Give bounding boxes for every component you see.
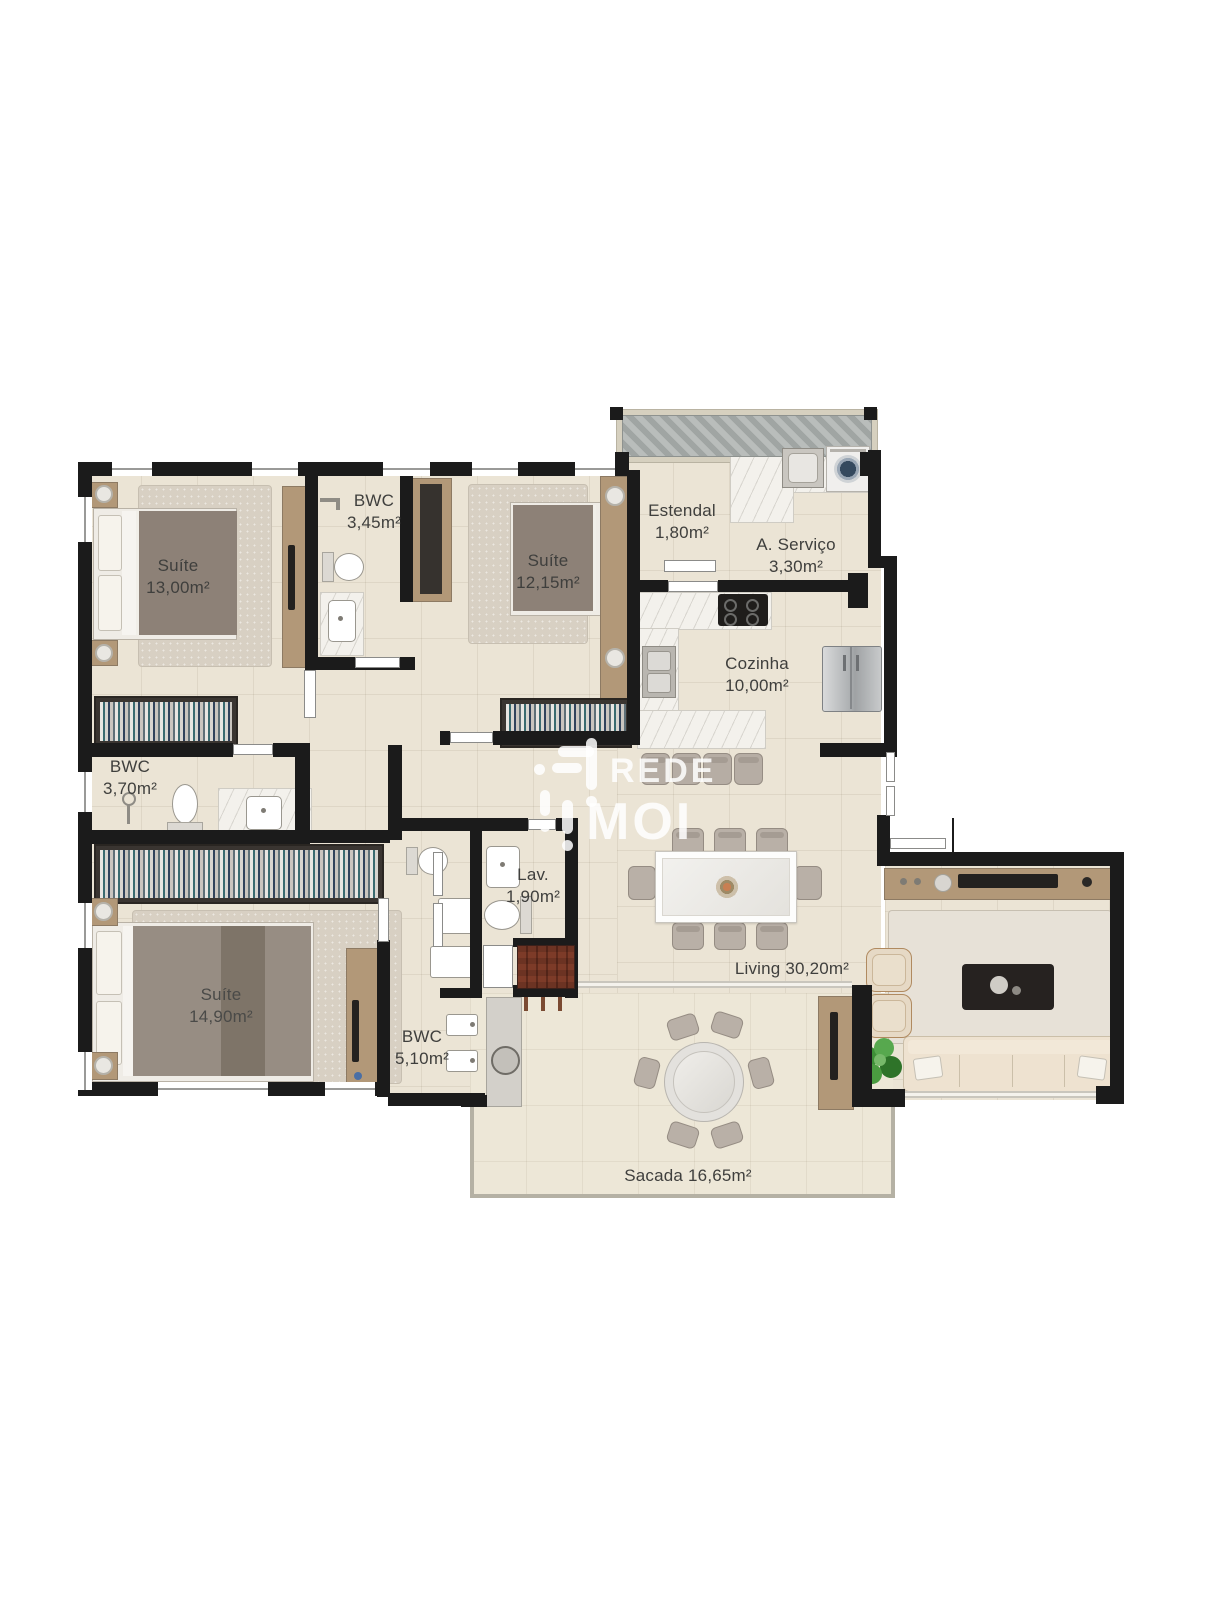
lamp-icon (95, 644, 113, 662)
wall-segment (310, 830, 390, 843)
wall-segment (610, 407, 623, 420)
logo-mark-icon (540, 790, 550, 816)
door-leaf (668, 581, 718, 592)
wall-segment (470, 820, 482, 998)
wall-segment (295, 743, 310, 843)
bbq-skewer (541, 997, 545, 1011)
sink (328, 600, 356, 642)
room-area: 10,00m² (725, 675, 789, 697)
dining-chair (714, 922, 746, 950)
room-area: 3,70m² (103, 778, 157, 800)
room-name: Living 30,20m² (735, 958, 849, 980)
wall-segment (395, 818, 528, 831)
room-area: 3,30m² (756, 556, 835, 578)
window (112, 462, 152, 476)
closet-strip-inner (420, 484, 442, 594)
wall-segment (864, 407, 877, 420)
logo-mark-icon (540, 822, 550, 832)
room-area: 5,10m² (395, 1048, 449, 1070)
door-leaf (355, 657, 400, 668)
coffee-table (962, 964, 1054, 1010)
dining-chair (756, 922, 788, 950)
door-leaf (433, 852, 443, 896)
balcony-rail (891, 1104, 895, 1198)
shower-box (438, 898, 474, 934)
wall-segment (78, 743, 233, 757)
sliding-door (578, 981, 852, 988)
dresser-suite-1215 (600, 476, 629, 706)
room-label-estendal: Estendal 1,80m² (648, 500, 716, 544)
room-label-suite-1490: Suíte 14,90m² (189, 984, 253, 1028)
room-label-suite-13: Suíte 13,00m² (146, 555, 210, 599)
room-label-servico: A. Serviço 3,30m² (756, 534, 835, 578)
wall-segment (78, 542, 92, 772)
room-label-sacada: Sacada 16,65m² (624, 1165, 752, 1187)
sliding-door (905, 1091, 1096, 1098)
toilet (334, 553, 364, 581)
bbq-skewer (558, 997, 562, 1011)
logo-mark-icon (562, 840, 573, 851)
wardrobe-suite-13 (94, 696, 238, 747)
window (383, 462, 430, 476)
door-leaf (450, 732, 493, 743)
cooktop (718, 594, 768, 626)
shower-icon (336, 498, 340, 510)
room-label-lav: Lav. 1,90m² (506, 864, 560, 908)
wall-segment (852, 1089, 905, 1107)
wall-segment (152, 462, 252, 476)
wall-segment (848, 573, 868, 608)
dining-chair (794, 866, 822, 900)
dresser-suite-1490 (346, 948, 378, 1096)
wall-segment (430, 462, 472, 476)
door-leaf (664, 560, 716, 572)
watermark-text-line2: MOI (586, 792, 693, 852)
window (325, 1082, 375, 1096)
room-label-bwc-510: BWC 5,10m² (395, 1026, 449, 1070)
door-leaf (378, 898, 389, 942)
room-name: BWC (347, 490, 401, 512)
room-label-cozinha: Cozinha 10,00m² (725, 653, 789, 697)
room-area: 14,90m² (189, 1006, 253, 1028)
lamp-icon (95, 485, 113, 503)
room-name: Suíte (516, 550, 580, 572)
armchair (866, 948, 912, 992)
window (78, 497, 92, 542)
toilet-tank (322, 552, 334, 582)
door-leaf (233, 744, 273, 755)
tv-icon (288, 545, 295, 610)
window (78, 772, 92, 812)
room-label-bwc-370: BWC 3,70m² (103, 756, 157, 800)
lamp-icon (605, 648, 625, 668)
laundry-sink (782, 448, 824, 488)
wall-segment (78, 948, 92, 1052)
wall-segment (518, 462, 575, 476)
room-area: 1,90m² (506, 886, 560, 908)
room-name: BWC (395, 1026, 449, 1048)
toilet (172, 784, 198, 824)
wall-segment (461, 1095, 487, 1107)
wall-segment (640, 580, 668, 592)
tv-icon (958, 874, 1058, 888)
wall-segment (268, 1082, 325, 1096)
wall-segment (440, 731, 450, 745)
room-name: A. Serviço (756, 534, 835, 556)
room-name: Cozinha (725, 653, 789, 675)
window (78, 903, 92, 948)
room-area: 13,00m² (146, 577, 210, 599)
bbq-counter (486, 997, 522, 1107)
bbq-grill (517, 945, 575, 989)
wall-segment (868, 450, 881, 564)
wall-segment (377, 940, 390, 1097)
room-area: 3,45m² (347, 512, 401, 534)
bbq-skewer (524, 997, 528, 1011)
wall-segment (78, 812, 92, 903)
wall-segment (718, 580, 868, 592)
logo-mark-icon (562, 800, 573, 834)
door-leaf (483, 945, 513, 988)
watermark-text-line1: REDE (610, 752, 716, 791)
wall-segment (305, 470, 318, 670)
dining-chair (672, 922, 704, 950)
wall-segment (884, 564, 897, 748)
room-label-suite-1215: Suíte 12,15m² (516, 550, 580, 594)
logo-mark-icon (534, 764, 545, 775)
tv-icon (352, 1000, 359, 1062)
tv-icon (830, 1012, 838, 1080)
door-leaf (886, 752, 895, 782)
window (158, 1082, 268, 1096)
balcony-rail (470, 1107, 474, 1198)
room-name: Suíte (146, 555, 210, 577)
door-leaf (890, 838, 946, 849)
room-name: Estendal (648, 500, 716, 522)
shower-box (430, 946, 474, 978)
balcony-table (664, 1042, 744, 1122)
kitchen-sink (642, 646, 676, 698)
watermark-logo: REDE MOI (520, 730, 740, 860)
wall-segment (400, 470, 413, 602)
balcony-rail (470, 1194, 895, 1198)
window (78, 1052, 92, 1090)
room-name: Sacada 16,65m² (624, 1165, 752, 1187)
decor-dish (934, 874, 952, 892)
room-label-living: Living 30,20m² (735, 958, 849, 980)
floor-plan: Suíte 13,00m² BWC 3,45m² Suíte 12,15m² E… (0, 0, 1227, 1600)
room-area: 12,15m² (516, 572, 580, 594)
dining-chair (628, 866, 656, 900)
window (252, 462, 298, 476)
room-area: 1,80m² (648, 522, 716, 544)
wall-segment (1096, 1086, 1124, 1104)
sink (246, 796, 282, 830)
door-leaf (433, 903, 443, 947)
logo-mark-icon (586, 738, 597, 790)
lamp-icon (94, 1056, 113, 1075)
lamp-icon (94, 902, 113, 921)
dining-table (655, 851, 797, 923)
wall-segment (1110, 852, 1124, 1104)
sofa (903, 1036, 1117, 1092)
wall-segment (627, 470, 640, 745)
door-leaf (886, 786, 895, 816)
door-leaf (304, 670, 316, 718)
wall-segment (877, 852, 1124, 866)
room-name: Suíte (189, 984, 253, 1006)
lamp-icon (605, 486, 625, 506)
wall-segment (78, 462, 92, 497)
shower-icon (127, 804, 130, 824)
room-name: BWC (103, 756, 157, 778)
wardrobe-suite-1490 (94, 844, 384, 904)
room-name: Lav. (506, 864, 560, 886)
wall-segment (78, 830, 310, 844)
toilet-tank (406, 847, 418, 875)
fridge (822, 646, 882, 712)
armchair (866, 994, 912, 1038)
window (472, 462, 518, 476)
wall-segment (440, 988, 477, 998)
window (575, 462, 615, 476)
room-label-bwc-345: BWC 3,45m² (347, 490, 401, 534)
logo-mark-icon (552, 763, 582, 773)
